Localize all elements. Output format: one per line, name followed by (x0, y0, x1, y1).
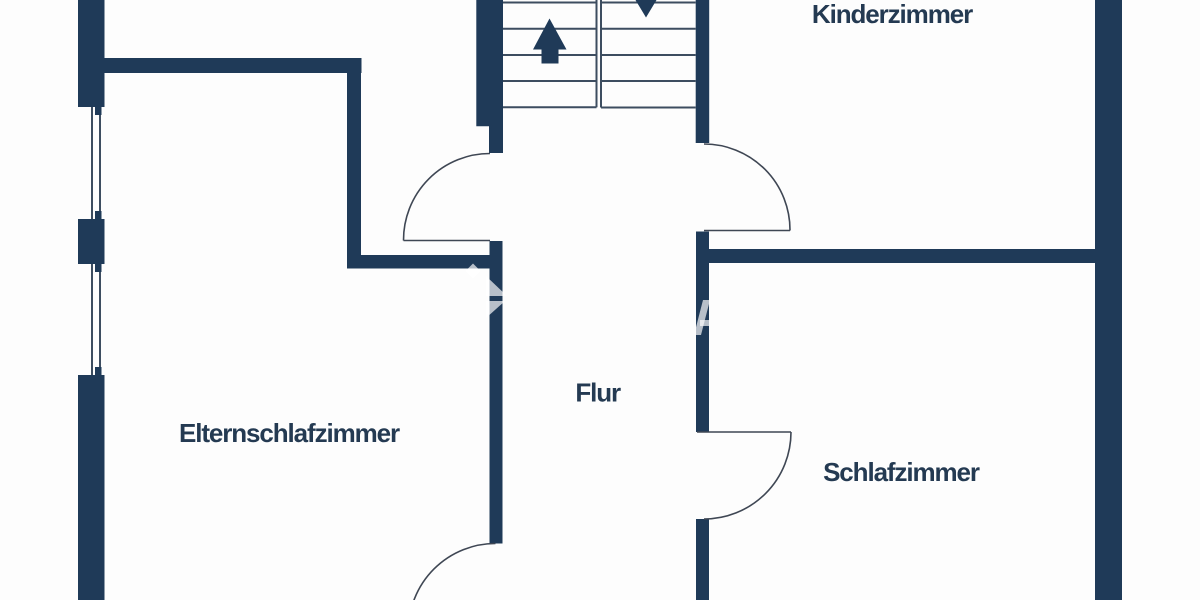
svg-text:Elternschlafzimmer: Elternschlafzimmer (179, 418, 400, 448)
svg-text:Flur: Flur (575, 378, 621, 408)
svg-text:Kinderzimmer: Kinderzimmer (812, 0, 973, 29)
svg-text:Schlafzimmer: Schlafzimmer (823, 457, 980, 487)
